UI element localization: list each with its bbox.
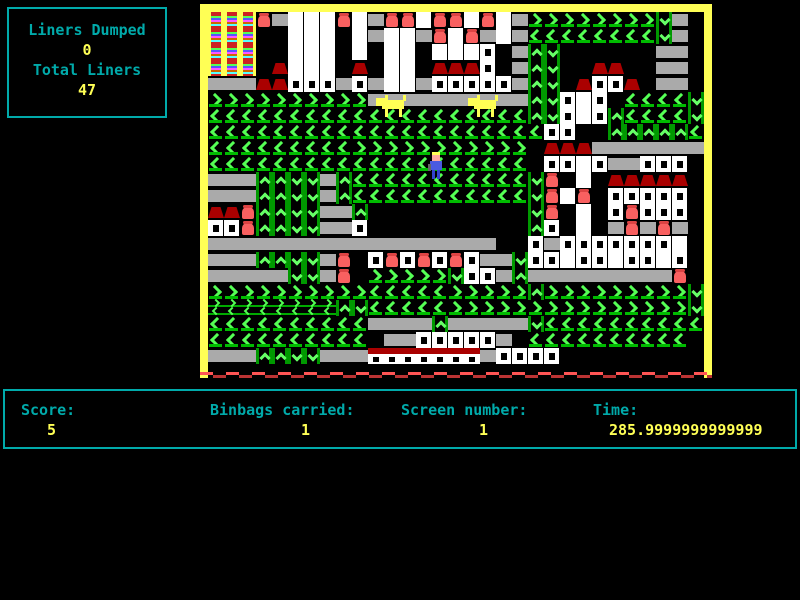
binbags-carried-value: 1 — [301, 421, 310, 439]
tile-ladder-down — [544, 60, 560, 76]
tile-platform — [224, 236, 240, 252]
tile-building-window — [480, 76, 496, 92]
tile-platform — [224, 188, 240, 204]
tile-platform — [384, 332, 400, 348]
tile-conveyor-left — [560, 316, 576, 332]
tile-building-window — [448, 76, 464, 92]
tile-conveyor-right — [576, 300, 592, 316]
tile-platform — [368, 28, 384, 44]
tile-platform — [624, 140, 640, 156]
tile-platform — [672, 12, 688, 28]
tile-ladder-down — [528, 188, 544, 204]
tile-conveyor-right — [608, 284, 624, 300]
tile-platform — [336, 236, 352, 252]
tile-platform — [240, 348, 256, 364]
tile-platform — [656, 140, 672, 156]
tile-tower-rainbow — [240, 12, 256, 28]
tile-ladder-down — [304, 172, 320, 188]
tile-roof — [272, 60, 288, 76]
tile-platform — [400, 332, 416, 348]
tile-conveyor-left — [384, 300, 400, 316]
tile-conveyor-right — [496, 284, 512, 300]
tile-platform — [672, 220, 688, 236]
tile-building-window — [464, 332, 480, 348]
tile-platform — [608, 156, 624, 172]
tile-conveyor-right — [400, 140, 416, 156]
tile-conveyor-left — [608, 332, 624, 348]
tile-building-plain — [576, 220, 592, 236]
tile-conveyor-left — [256, 108, 272, 124]
tile-conveyor-right — [480, 284, 496, 300]
tile-conveyor-right — [512, 140, 528, 156]
tile-bin — [384, 12, 400, 28]
tile-building-window — [448, 332, 464, 348]
tile-conveyor-left — [256, 332, 272, 348]
tile-conveyor-right — [512, 284, 528, 300]
tile-conveyor-left — [672, 332, 688, 348]
tile-ladder-up — [432, 316, 448, 332]
status-bar: Score: 5 Binbags carried: 1 Screen numbe… — [3, 389, 797, 449]
total-liners-value: 47 — [9, 80, 165, 100]
tile-ladder-up — [624, 124, 640, 140]
tile-building-plain — [400, 44, 416, 60]
tile-building-plain — [384, 60, 400, 76]
tile-platform — [320, 204, 336, 220]
dog-leg-b — [491, 109, 494, 117]
tile-building-window — [400, 252, 416, 268]
tile-platform — [624, 156, 640, 172]
tile-building-plain — [576, 108, 592, 124]
tile-platform — [224, 348, 240, 364]
tile-platform — [352, 348, 368, 364]
tile-building-window — [560, 236, 576, 252]
tile-building-window — [608, 188, 624, 204]
tile-conveyor-left — [304, 332, 320, 348]
tile-platform — [512, 76, 528, 92]
tile-conveyor-right — [592, 12, 608, 28]
tile-platform — [320, 268, 336, 284]
tile-building-window — [592, 108, 608, 124]
tile-platform — [672, 140, 688, 156]
tile-building-plain — [320, 12, 336, 28]
tile-conveyor-left — [432, 284, 448, 300]
tile-building-plain — [384, 44, 400, 60]
tile-roof — [640, 172, 656, 188]
tile-ladder-up — [640, 124, 656, 140]
tile-conveyor-left — [448, 188, 464, 204]
tile-conveyor-right — [304, 92, 320, 108]
tile-building-window — [656, 156, 672, 172]
tile-platform — [432, 92, 448, 108]
tile-ladder-up — [256, 220, 272, 236]
tile-building-window — [640, 236, 656, 252]
tile-conveyor-right — [320, 284, 336, 300]
tile-building-plain — [576, 172, 592, 188]
tile-platform — [240, 236, 256, 252]
tile-conveyor-right — [288, 284, 304, 300]
tile-conveyor-left — [496, 124, 512, 140]
tile-conveyor-left — [400, 124, 416, 140]
tile-conveyor-left — [288, 124, 304, 140]
tile-bin — [336, 12, 352, 28]
tile-platform — [448, 92, 464, 108]
tile-bin — [624, 204, 640, 220]
tile-ladder-down — [656, 12, 672, 28]
tile-conveyor-right — [384, 268, 400, 284]
tile-building-window — [528, 252, 544, 268]
tile-platform — [512, 316, 528, 332]
tile-platform — [608, 220, 624, 236]
tile-tower-rainbow — [224, 60, 240, 76]
tile-platform — [384, 316, 400, 332]
tile-platform — [640, 268, 656, 284]
tile-bin — [656, 220, 672, 236]
tile-conveyor-left — [352, 108, 368, 124]
tile-platform — [592, 268, 608, 284]
tile-building-window — [672, 156, 688, 172]
tile-conveyor-right — [432, 268, 448, 284]
tile-platform — [368, 316, 384, 332]
tile-platform — [208, 268, 224, 284]
tile-conveyor-left — [240, 316, 256, 332]
tile-conveyor-mini-double — [288, 300, 304, 316]
tile-conveyor-left — [464, 156, 480, 172]
tile-conveyor-left — [576, 332, 592, 348]
tile-ladder-up — [256, 172, 272, 188]
tile-conveyor-right — [368, 268, 384, 284]
tile-conveyor-left — [496, 188, 512, 204]
tile-house-strip — [448, 348, 464, 364]
tile-conveyor-left — [352, 332, 368, 348]
tile-building-plain — [400, 28, 416, 44]
tile-conveyor-left — [336, 316, 352, 332]
tile-platform — [320, 220, 336, 236]
tile-platform — [656, 60, 672, 76]
tile-building-window — [480, 268, 496, 284]
binbags-carried-label: Binbags carried: — [210, 401, 355, 419]
tile-platform — [224, 76, 240, 92]
tile-conveyor-right — [480, 300, 496, 316]
tile-platform — [320, 188, 336, 204]
tile-conveyor-right — [560, 12, 576, 28]
tile-building-plain — [304, 44, 320, 60]
dog-ear — [385, 95, 388, 100]
tile-conveyor-right — [448, 284, 464, 300]
tile-conveyor-left — [288, 108, 304, 124]
tile-platform — [224, 252, 240, 268]
tile-conveyor-right — [272, 92, 288, 108]
tile-conveyor-right — [352, 92, 368, 108]
tile-platform — [464, 236, 480, 252]
tile-ladder-down — [528, 204, 544, 220]
tile-platform — [400, 316, 416, 332]
tile-conveyor-left — [352, 156, 368, 172]
tile-conveyor-right — [576, 284, 592, 300]
tile-conveyor-left — [256, 316, 272, 332]
tile-conveyor-right — [544, 284, 560, 300]
tile-bin — [624, 220, 640, 236]
tile-platform — [384, 236, 400, 252]
tile-roof — [448, 60, 464, 76]
tile-building-window — [464, 252, 480, 268]
tile-ladder-up — [528, 44, 544, 60]
tile-conveyor-left — [480, 124, 496, 140]
tile-building-plain — [576, 156, 592, 172]
tile-conveyor-left — [400, 300, 416, 316]
tile-ladder-up — [528, 284, 544, 300]
tile-platform — [576, 268, 592, 284]
tile-conveyor-right — [592, 300, 608, 316]
tile-conveyor-right — [640, 284, 656, 300]
tile-conveyor-right — [560, 300, 576, 316]
tile-building-plain — [288, 60, 304, 76]
tile-ladder-up — [608, 108, 624, 124]
tile-platform — [368, 12, 384, 28]
tile-conveyor-left — [240, 124, 256, 140]
tile-platform — [256, 268, 272, 284]
tile-platform — [496, 268, 512, 284]
tile-building-plain — [448, 28, 464, 44]
tile-bin — [400, 12, 416, 28]
tile-conveyor-right — [640, 300, 656, 316]
tile-building-window — [512, 348, 528, 364]
tile-building-window — [672, 188, 688, 204]
tile-house-strip — [416, 348, 432, 364]
tile-platform — [432, 236, 448, 252]
tile-platform — [480, 252, 496, 268]
dog-sprite — [468, 94, 500, 117]
tile-conveyor-left — [592, 316, 608, 332]
tile-platform — [208, 172, 224, 188]
tile-conveyor-left — [480, 188, 496, 204]
tile-ladder-down — [688, 92, 704, 108]
tile-conveyor-left — [288, 140, 304, 156]
tile-conveyor-right — [240, 284, 256, 300]
tile-ladder-up — [272, 172, 288, 188]
tile-bin — [480, 12, 496, 28]
tile-bin — [336, 252, 352, 268]
tile-building-window — [368, 252, 384, 268]
tile-ladder-down — [688, 284, 704, 300]
tile-building-window — [320, 76, 336, 92]
tile-conveyor-left — [320, 108, 336, 124]
tile-conveyor-left — [368, 300, 384, 316]
tile-conveyor-left — [512, 108, 528, 124]
tile-conveyor-left — [240, 332, 256, 348]
tile-conveyor-right — [208, 92, 224, 108]
tile-platform — [208, 348, 224, 364]
tile-building-plain — [400, 60, 416, 76]
tile-conveyor-right — [400, 268, 416, 284]
tile-ladder-up — [256, 348, 272, 364]
tile-ladder-up — [272, 188, 288, 204]
tile-building-window — [656, 236, 672, 252]
tile-platform — [496, 332, 512, 348]
tile-conveyor-right — [656, 300, 672, 316]
tile-conveyor-mini-double — [320, 300, 336, 316]
tile-ladder-down — [288, 188, 304, 204]
tile-building-window — [288, 76, 304, 92]
tile-conveyor-right — [544, 12, 560, 28]
tile-bin — [240, 220, 256, 236]
tile-conveyor-right — [608, 12, 624, 28]
tile-platform — [208, 76, 224, 92]
tile-bin — [256, 12, 272, 28]
tile-platform — [480, 316, 496, 332]
tile-conveyor-left — [368, 156, 384, 172]
tile-roof — [608, 172, 624, 188]
tile-building-window — [592, 252, 608, 268]
tile-conveyor-left — [272, 124, 288, 140]
tile-platform — [416, 76, 432, 92]
tile-platform — [672, 60, 688, 76]
tile-platform — [480, 348, 496, 364]
tile-building-window — [672, 252, 688, 268]
tile-building-window — [480, 44, 496, 60]
tile-ladder-up — [256, 188, 272, 204]
tile-conveyor-right — [224, 284, 240, 300]
tile-conveyor-left — [528, 124, 544, 140]
tile-conveyor-left — [528, 28, 544, 44]
tile-conveyor-right — [256, 284, 272, 300]
tile-platform — [240, 76, 256, 92]
tile-platform — [592, 140, 608, 156]
tile-ladder-up — [656, 124, 672, 140]
tile-roof — [544, 140, 560, 156]
tile-conveyor-left — [624, 28, 640, 44]
tile-house-strip — [400, 348, 416, 364]
tile-platform — [336, 204, 352, 220]
tile-ladder-up — [528, 108, 544, 124]
tile-conveyor-left — [528, 332, 544, 348]
tile-conveyor-left — [352, 124, 368, 140]
tile-bin — [672, 268, 688, 284]
tile-conveyor-left — [576, 28, 592, 44]
tile-ladder-down — [352, 300, 368, 316]
tile-ladder-down — [512, 252, 528, 268]
tile-platform — [208, 252, 224, 268]
tile-conveyor-left — [608, 316, 624, 332]
tile-ladder-down — [688, 300, 704, 316]
tile-ladder-up — [528, 220, 544, 236]
tile-ladder-down — [304, 268, 320, 284]
tile-building-plain — [416, 12, 432, 28]
tile-platform — [656, 76, 672, 92]
tile-building-window — [208, 220, 224, 236]
tile-conveyor-left — [576, 316, 592, 332]
tile-house-strip — [368, 348, 384, 364]
tile-conveyor-right — [352, 140, 368, 156]
tile-tower-rainbow — [240, 60, 256, 76]
tile-conveyor-left — [512, 172, 528, 188]
tile-conveyor-right — [624, 284, 640, 300]
tile-building-window — [432, 252, 448, 268]
tile-conveyor-left — [208, 108, 224, 124]
screen-number-value: 1 — [479, 421, 488, 439]
tile-roof — [352, 60, 368, 76]
tile-platform — [416, 92, 432, 108]
tile-conveyor-right — [464, 300, 480, 316]
tile-building-window — [592, 76, 608, 92]
tile-ladder-up — [608, 124, 624, 140]
tile-platform — [320, 252, 336, 268]
tile-conveyor-left — [304, 316, 320, 332]
tile-conveyor-left — [640, 316, 656, 332]
tile-ladder-down — [528, 172, 544, 188]
tile-building-window — [592, 156, 608, 172]
tile-conveyor-left — [208, 140, 224, 156]
tile-conveyor-left — [384, 284, 400, 300]
tile-conveyor-left — [256, 124, 272, 140]
tile-conveyor-mini-double — [272, 300, 288, 316]
tile-conveyor-right — [368, 140, 384, 156]
tile-conveyor-left — [256, 140, 272, 156]
tile-ladder-down — [304, 188, 320, 204]
tile-platform — [656, 268, 672, 284]
tile-platform — [368, 236, 384, 252]
tile-conveyor-left — [288, 156, 304, 172]
tile-conveyor-left — [288, 332, 304, 348]
tile-platform — [480, 28, 496, 44]
tile-conveyor-left — [416, 124, 432, 140]
tile-ladder-down — [544, 76, 560, 92]
tile-conveyor-left — [224, 108, 240, 124]
tile-roof — [672, 172, 688, 188]
tile-conveyor-left — [320, 156, 336, 172]
tile-platform — [672, 44, 688, 60]
tile-conveyor-left — [624, 92, 640, 108]
tile-platform — [528, 268, 544, 284]
tile-platform — [512, 12, 528, 28]
tile-conveyor-left — [672, 92, 688, 108]
tile-platform — [240, 188, 256, 204]
tile-conveyor-left — [672, 316, 688, 332]
tile-building-window — [560, 156, 576, 172]
tile-building-window — [608, 204, 624, 220]
tile-conveyor-left — [672, 108, 688, 124]
tile-platform — [288, 236, 304, 252]
tile-house-strip — [464, 348, 480, 364]
tile-conveyor-right — [224, 92, 240, 108]
dog-head — [468, 98, 477, 106]
tile-conveyor-left — [224, 124, 240, 140]
tile-platform — [560, 268, 576, 284]
tile-conveyor-left — [336, 332, 352, 348]
tile-platform — [688, 140, 704, 156]
tile-platform — [512, 28, 528, 44]
tile-ladder-up — [336, 188, 352, 204]
tile-building-plain — [464, 44, 480, 60]
game-area[interactable] — [200, 4, 712, 378]
tile-conveyor-left — [544, 332, 560, 348]
dog-ear — [477, 95, 480, 100]
score-label: Score: — [21, 401, 75, 419]
tile-building-window — [640, 252, 656, 268]
dog-sprite — [376, 94, 408, 117]
tile-conveyor-left — [608, 28, 624, 44]
tile-conveyor-left — [384, 172, 400, 188]
tile-conveyor-right — [528, 300, 544, 316]
tile-conveyor-left — [560, 28, 576, 44]
tile-building-plain — [288, 12, 304, 28]
tile-conveyor-left — [224, 156, 240, 172]
tile-building-window — [544, 124, 560, 140]
tile-building-window — [672, 204, 688, 220]
tile-platform — [400, 236, 416, 252]
tile-bin — [544, 172, 560, 188]
tile-platform — [448, 316, 464, 332]
tile-conveyor-left — [464, 172, 480, 188]
